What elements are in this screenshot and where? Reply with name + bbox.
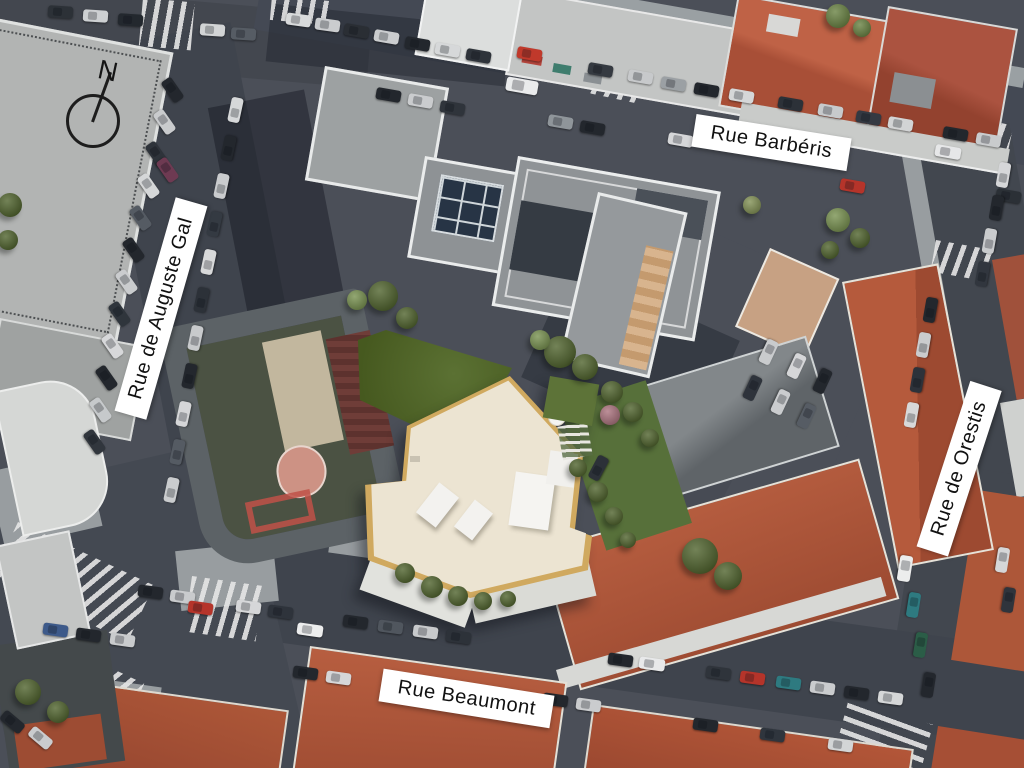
car — [42, 622, 68, 637]
car — [877, 690, 903, 705]
car — [516, 46, 543, 62]
car — [94, 364, 118, 391]
compass-north-letter: N — [95, 54, 121, 89]
car — [587, 454, 609, 482]
car — [267, 604, 293, 619]
car — [667, 132, 694, 148]
car — [181, 363, 198, 390]
car — [235, 599, 261, 614]
car — [693, 82, 720, 98]
car — [47, 5, 73, 19]
car — [795, 402, 816, 430]
car — [897, 554, 914, 582]
car — [974, 261, 990, 288]
car — [809, 680, 835, 695]
car — [193, 287, 210, 314]
car — [121, 236, 145, 263]
car — [692, 717, 718, 732]
car — [660, 76, 687, 92]
car — [465, 48, 492, 64]
car — [994, 547, 1010, 574]
car — [377, 619, 403, 634]
car — [547, 114, 574, 130]
car — [109, 632, 135, 647]
car — [912, 632, 928, 659]
car — [285, 12, 311, 27]
car — [741, 374, 762, 402]
car — [175, 401, 192, 428]
car — [82, 9, 108, 23]
car — [439, 100, 466, 116]
car — [325, 670, 351, 685]
car — [137, 584, 163, 599]
car — [775, 675, 801, 690]
car — [839, 178, 866, 194]
car — [757, 338, 778, 366]
car — [777, 96, 804, 112]
car — [905, 592, 921, 619]
car — [0, 709, 25, 734]
car — [922, 297, 938, 324]
car — [82, 428, 106, 455]
car — [811, 367, 832, 395]
car — [412, 624, 438, 639]
car — [117, 13, 143, 27]
car — [373, 29, 400, 45]
north-compass-icon: N — [58, 60, 148, 160]
car — [981, 228, 997, 255]
car — [213, 173, 230, 200]
car — [128, 204, 152, 231]
car — [114, 268, 138, 295]
car — [739, 670, 765, 685]
car — [785, 352, 806, 380]
car — [705, 665, 731, 680]
car — [920, 672, 936, 699]
car — [169, 439, 186, 466]
car — [909, 367, 925, 394]
car — [587, 62, 614, 78]
car — [342, 614, 368, 629]
car — [187, 600, 213, 615]
car — [1000, 587, 1016, 614]
car — [575, 697, 601, 712]
car — [199, 23, 225, 37]
car — [915, 332, 931, 359]
car — [769, 388, 790, 416]
car — [728, 88, 755, 104]
car — [975, 132, 1002, 148]
car — [200, 249, 217, 276]
car — [627, 69, 654, 85]
car — [445, 629, 471, 644]
car — [759, 727, 785, 742]
car — [505, 76, 539, 95]
car — [296, 622, 323, 638]
car — [607, 652, 633, 667]
car — [988, 195, 1004, 222]
car — [343, 23, 370, 39]
car — [152, 108, 176, 135]
car — [407, 93, 434, 109]
car — [434, 42, 461, 58]
car — [827, 737, 853, 752]
car — [375, 87, 402, 103]
car — [404, 36, 431, 52]
car — [887, 116, 914, 132]
car — [75, 627, 101, 642]
car — [855, 110, 882, 126]
car — [107, 300, 131, 327]
car — [136, 172, 160, 199]
car — [187, 325, 204, 352]
car — [579, 120, 606, 136]
car — [903, 402, 919, 429]
aerial-site-plan: N Rue Barbéris Rue de Auguste Gal Rue de… — [0, 0, 1024, 768]
car — [942, 126, 969, 142]
car — [638, 656, 665, 672]
car — [843, 685, 869, 700]
car — [220, 135, 237, 162]
car — [934, 144, 962, 160]
car — [314, 17, 340, 32]
car — [27, 725, 54, 750]
car — [100, 332, 124, 359]
car — [160, 76, 184, 103]
car — [155, 156, 179, 183]
car — [230, 27, 256, 41]
car — [163, 477, 180, 504]
car — [88, 396, 112, 423]
car — [227, 97, 244, 124]
car — [817, 103, 844, 119]
car — [292, 665, 318, 680]
car — [995, 162, 1011, 189]
car — [206, 211, 223, 238]
